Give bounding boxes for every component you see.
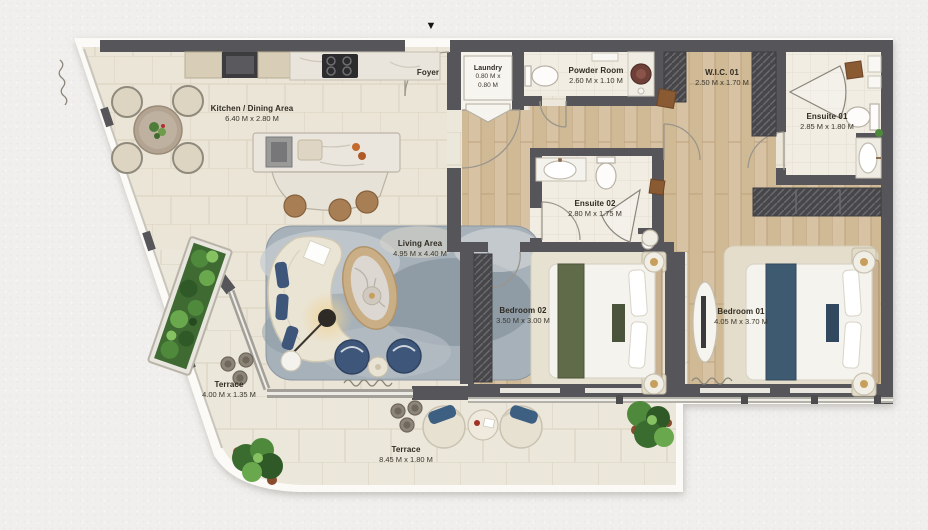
kitchen-counter-run — [185, 52, 440, 80]
side-table — [281, 351, 301, 371]
bedroom02-bed — [549, 252, 666, 394]
floorplan-canvas — [0, 0, 928, 530]
bedroom01-wardrobe — [753, 188, 881, 216]
stool — [642, 230, 658, 246]
floor-mirror — [693, 282, 717, 362]
bedroom01-bed — [746, 248, 879, 396]
laundry-closet — [464, 56, 512, 122]
stove — [322, 54, 358, 78]
floorplan-page: ▼ Kitchen / Dining Area 6.40 M x 2.80 M … — [0, 0, 928, 530]
bedroom02-wardrobe — [474, 254, 492, 382]
entry-arrow-icon: ▼ — [426, 20, 437, 32]
